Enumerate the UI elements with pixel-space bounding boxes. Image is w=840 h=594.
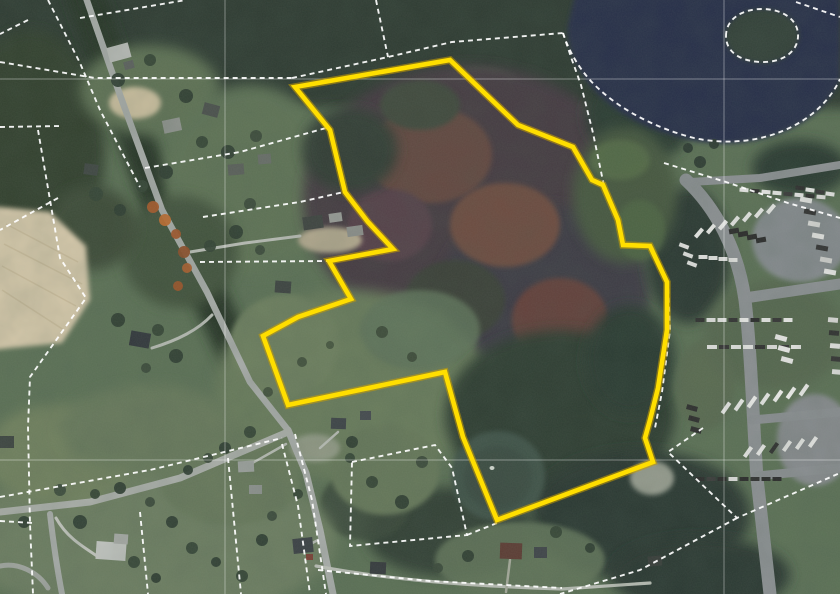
aerial-map <box>0 0 840 594</box>
aerial-map-canvas <box>0 0 840 594</box>
parcel-line <box>200 261 328 262</box>
image-grain-overlay <box>0 0 840 594</box>
